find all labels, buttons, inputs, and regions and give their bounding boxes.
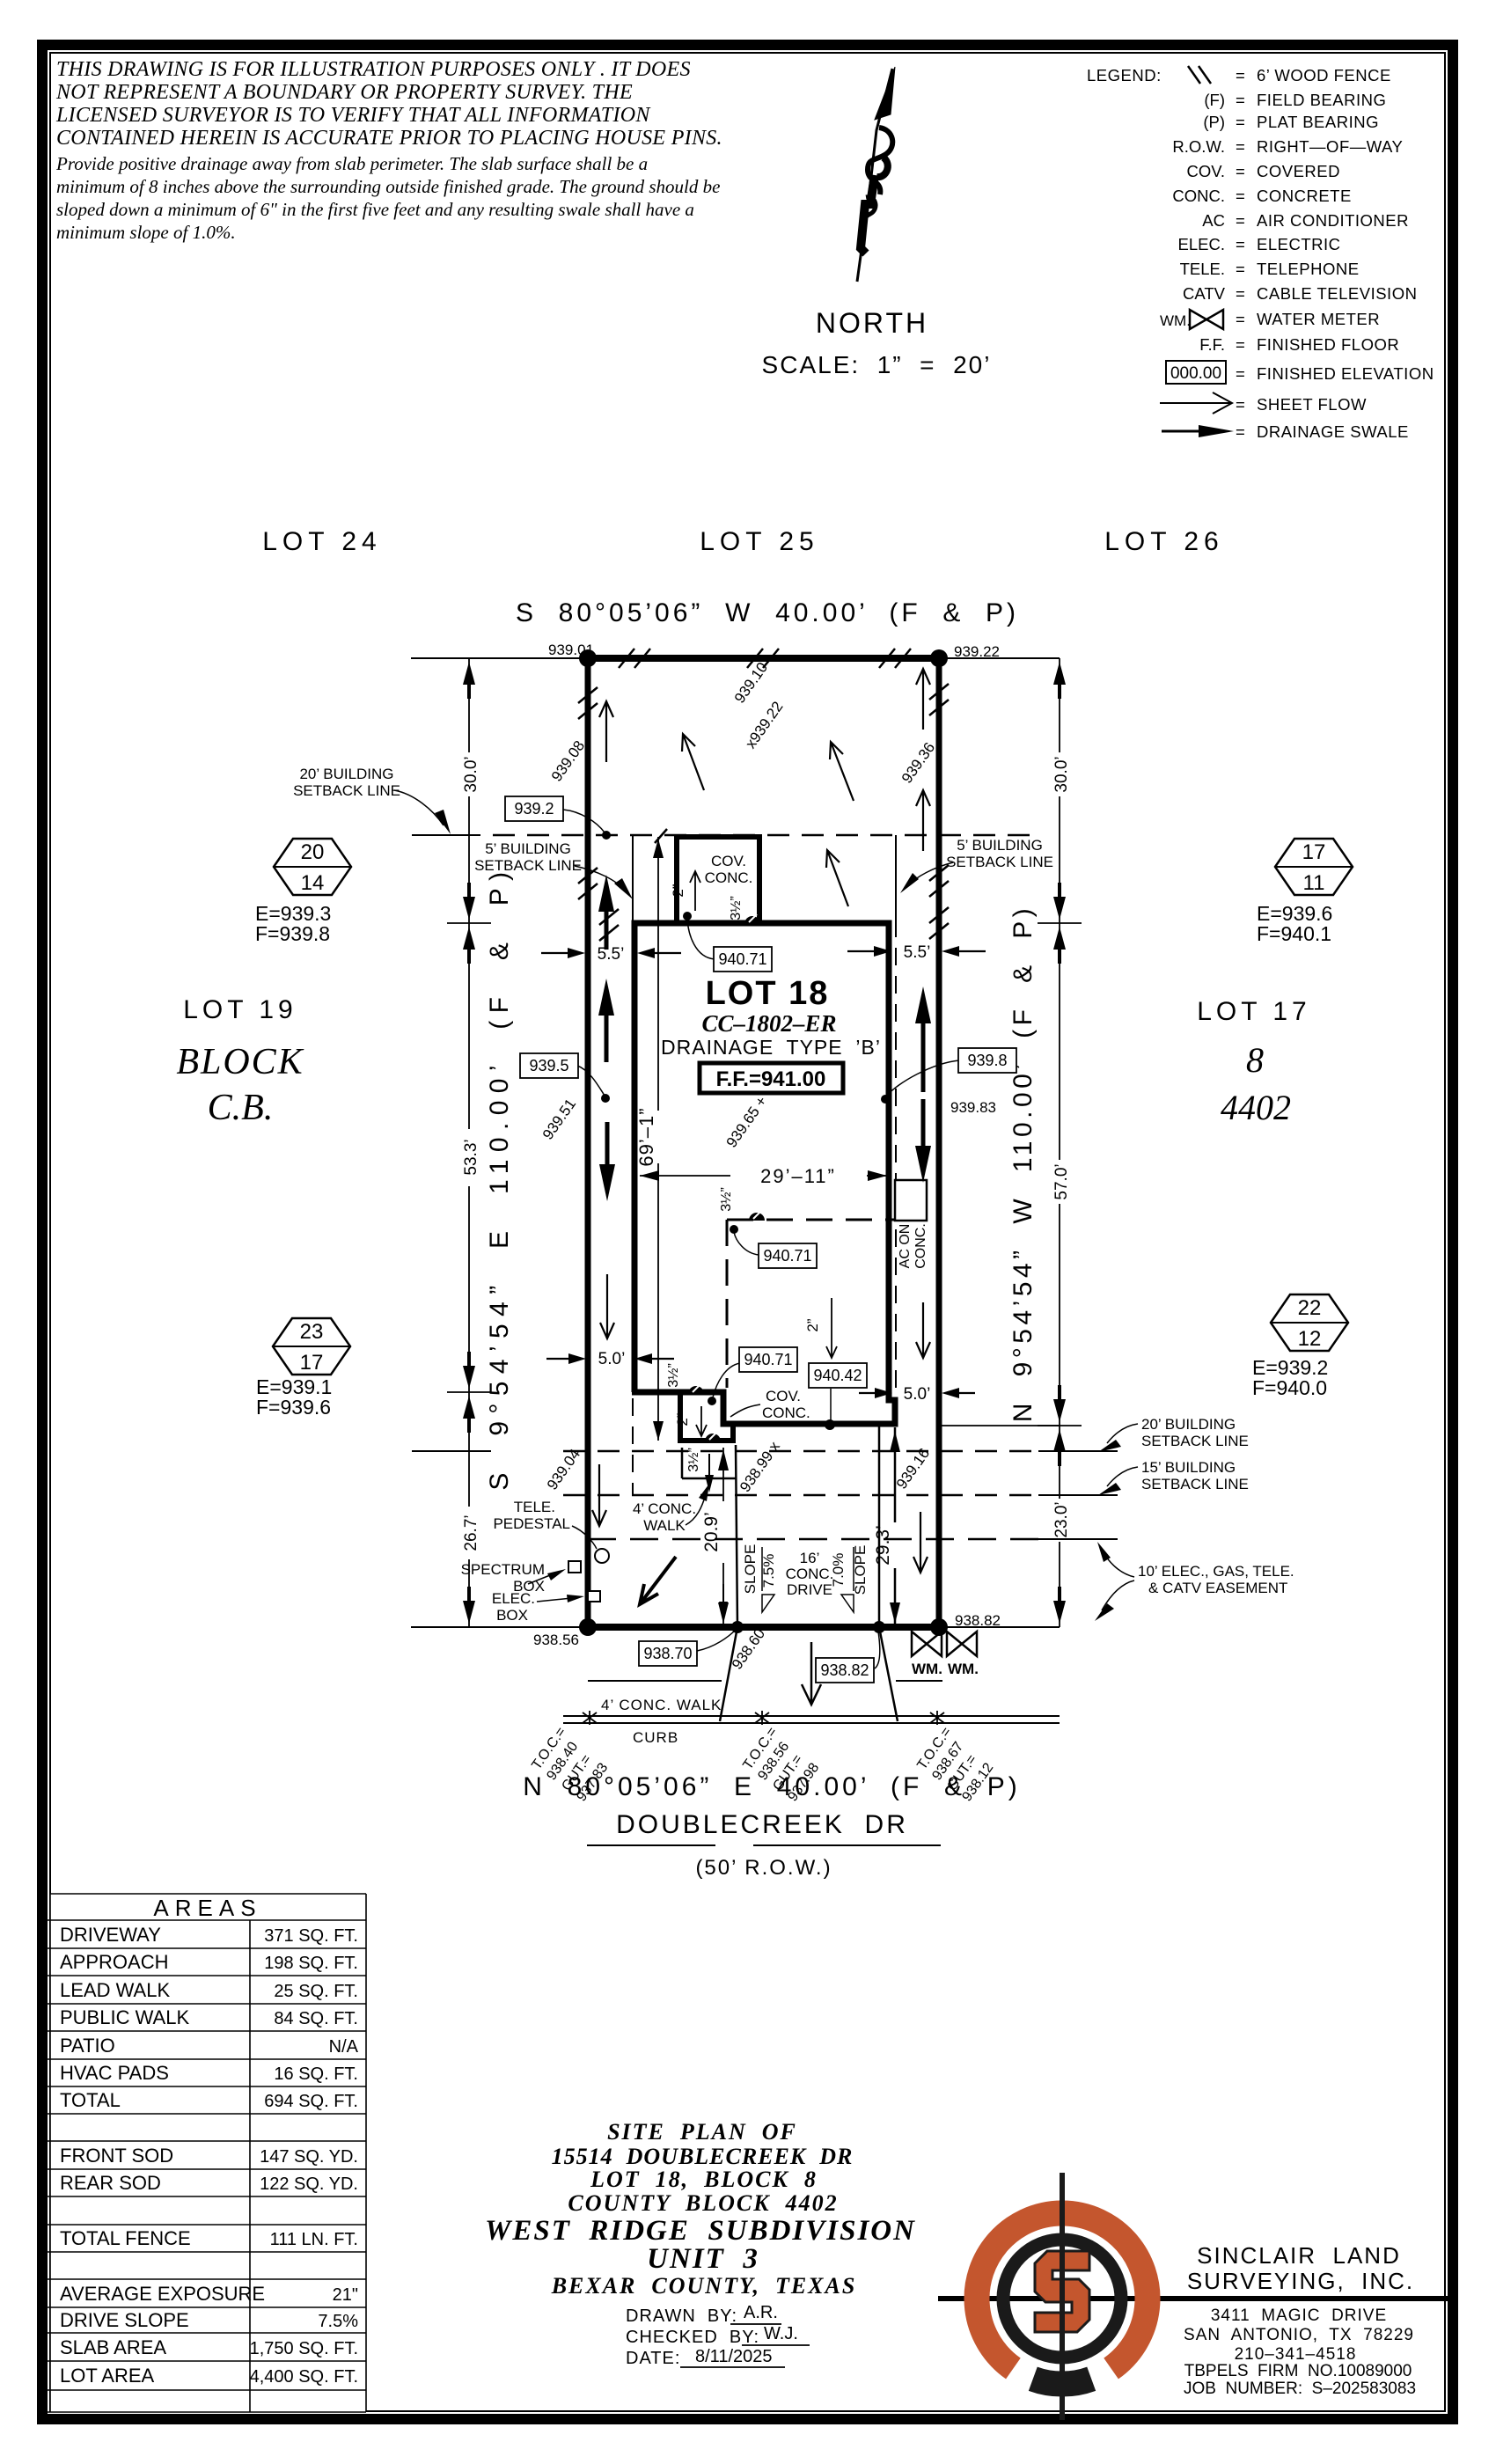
svg-text:CONC.: CONC. bbox=[1172, 187, 1225, 205]
svg-text:5’ BUILDING: 5’ BUILDING bbox=[957, 837, 1043, 854]
svg-text:=: = bbox=[1236, 335, 1245, 354]
svg-text:11: 11 bbox=[1303, 871, 1325, 895]
svg-text:UNIT 3: UNIT 3 bbox=[647, 2243, 759, 2275]
svg-text:F=939.8: F=939.8 bbox=[255, 922, 330, 945]
svg-text:7.0%: 7.0% bbox=[830, 1553, 847, 1588]
svg-text:PLAT BEARING: PLAT BEARING bbox=[1257, 113, 1379, 131]
svg-text:REAR SOD: REAR SOD bbox=[60, 2172, 161, 2194]
svg-text:N 9°54’54” W 110.00’ (F &: N 9°54’54” W 110.00’ (F & P) bbox=[1008, 905, 1038, 1422]
svg-text:R.O.W.: R.O.W. bbox=[1172, 137, 1225, 156]
svg-text:WALK: WALK bbox=[643, 1517, 686, 1534]
svg-text:3½”: 3½” bbox=[686, 1448, 701, 1472]
svg-text:=: = bbox=[1236, 91, 1245, 109]
svg-text:7.5%: 7.5% bbox=[760, 1554, 777, 1588]
svg-text:939.2: 939.2 bbox=[514, 800, 554, 818]
svg-text:23.0’: 23.0’ bbox=[1052, 1501, 1071, 1537]
svg-text:WEST RIDGE SUBDIVISION: WEST RIDGE SUBDIVISION bbox=[485, 2215, 916, 2247]
svg-text:DOUBLECREEK DR: DOUBLECREEK DR bbox=[616, 1810, 908, 1839]
svg-text:ELEC.: ELEC. bbox=[492, 1590, 535, 1607]
svg-text:=: = bbox=[1236, 137, 1245, 156]
svg-text:(F): (F) bbox=[1204, 91, 1225, 109]
svg-text:25 SQ. FT.: 25 SQ. FT. bbox=[274, 1982, 358, 2001]
svg-text:7.5%: 7.5% bbox=[318, 2312, 358, 2331]
svg-text:=: = bbox=[1236, 310, 1245, 328]
svg-text:SCALE: 1” = 20’: SCALE: 1” = 20’ bbox=[762, 351, 992, 378]
svg-text:WATER METER: WATER METER bbox=[1257, 310, 1380, 328]
svg-text:C.B.: C.B. bbox=[208, 1088, 274, 1128]
svg-text:F.F.=941.00: F.F.=941.00 bbox=[716, 1067, 826, 1091]
svg-text:694 SQ. FT.: 694 SQ. FT. bbox=[264, 2092, 358, 2111]
svg-text:DRAINAGE TYPE ’B’: DRAINAGE TYPE ’B’ bbox=[661, 1036, 881, 1059]
svg-text:PATIO: PATIO bbox=[60, 2035, 115, 2057]
svg-text:17: 17 bbox=[300, 1351, 324, 1375]
svg-text:BOX: BOX bbox=[496, 1607, 528, 1624]
svg-text:Provide positive drainage away: Provide positive drainage away from slab… bbox=[55, 153, 648, 174]
svg-text:NOT REPRESENT A BOUNDARY OR PR: NOT REPRESENT A BOUNDARY OR PROPERTY SUR… bbox=[55, 81, 633, 104]
svg-text:939.5: 939.5 bbox=[529, 1057, 568, 1074]
svg-text:COVERED: COVERED bbox=[1257, 162, 1340, 180]
svg-text:=: = bbox=[1236, 284, 1245, 303]
svg-text:CONC.: CONC. bbox=[705, 869, 753, 886]
svg-text:THIS DRAWING IS FOR ILLUSTRATI: THIS DRAWING IS FOR ILLUSTRATION PURPOSE… bbox=[56, 58, 691, 81]
svg-text:CHECKED BY:: CHECKED BY: bbox=[626, 2328, 759, 2347]
svg-text:111 LN. FT.: 111 LN. FT. bbox=[270, 2230, 358, 2249]
svg-text:SETBACK LINE: SETBACK LINE bbox=[1141, 1433, 1249, 1449]
svg-text:(50’ R.O.W.): (50’ R.O.W.) bbox=[695, 1856, 832, 1880]
svg-text:57.0’: 57.0’ bbox=[1052, 1163, 1071, 1199]
svg-text:5.0’: 5.0’ bbox=[598, 1350, 626, 1368]
svg-text:F=939.6: F=939.6 bbox=[256, 1396, 331, 1419]
svg-text:CABLE TELEVISION: CABLE TELEVISION bbox=[1257, 284, 1417, 303]
svg-text:FINISHED FLOOR: FINISHED FLOOR bbox=[1257, 335, 1399, 354]
svg-text:23: 23 bbox=[300, 1320, 324, 1344]
svg-text:2”: 2” bbox=[804, 1318, 821, 1331]
svg-text:29.3’: 29.3’ bbox=[873, 1525, 893, 1566]
svg-text:16’: 16’ bbox=[800, 1550, 820, 1566]
svg-text:CONC.: CONC. bbox=[786, 1566, 834, 1582]
svg-text:(P): (P) bbox=[1203, 113, 1225, 131]
svg-text:LOT 24: LOT 24 bbox=[262, 527, 382, 556]
svg-text:3½”: 3½” bbox=[666, 1363, 681, 1388]
svg-text:SAN ANTONIO, TX 78229: SAN ANTONIO, TX 78229 bbox=[1184, 2326, 1414, 2344]
svg-text:SINCLAIR LAND: SINCLAIR LAND bbox=[1197, 2242, 1401, 2269]
svg-text:WM.: WM. bbox=[912, 1661, 942, 1677]
svg-text:DRIVEWAY: DRIVEWAY bbox=[60, 1924, 161, 1946]
svg-text:3411 MAGIC DRIVE: 3411 MAGIC DRIVE bbox=[1211, 2306, 1387, 2325]
svg-text:20: 20 bbox=[301, 840, 325, 864]
svg-text:S 9°54’54” E 110.00’ (F &: S 9°54’54” E 110.00’ (F & P) bbox=[485, 864, 514, 1490]
svg-text:SETBACK LINE: SETBACK LINE bbox=[474, 857, 582, 874]
svg-text:SPECTRUM: SPECTRUM bbox=[461, 1561, 545, 1578]
svg-text:& CATV EASEMENT: & CATV EASEMENT bbox=[1148, 1580, 1287, 1596]
svg-text:=: = bbox=[1236, 260, 1245, 278]
svg-text:TELEPHONE: TELEPHONE bbox=[1257, 260, 1360, 278]
svg-text:CURB: CURB bbox=[633, 1729, 678, 1746]
svg-text:TELE.: TELE. bbox=[514, 1499, 555, 1515]
svg-text:AVERAGE EXPOSURE: AVERAGE EXPOSURE bbox=[60, 2283, 265, 2305]
svg-text:=: = bbox=[1236, 162, 1245, 180]
svg-text:5.5’: 5.5’ bbox=[598, 945, 625, 964]
svg-text:BEXAR COUNTY, TEXAS: BEXAR COUNTY, TEXAS bbox=[551, 2273, 857, 2299]
svg-text:939.22: 939.22 bbox=[954, 643, 1000, 660]
svg-text:53.3’: 53.3’ bbox=[462, 1139, 480, 1175]
svg-text:LOT 25: LOT 25 bbox=[700, 527, 819, 556]
svg-text:ELEC.: ELEC. bbox=[1178, 235, 1225, 253]
svg-text:WM.: WM. bbox=[1160, 312, 1191, 329]
svg-text:DRAWN BY:: DRAWN BY: bbox=[626, 2306, 737, 2326]
svg-text:26.7’: 26.7’ bbox=[462, 1514, 480, 1551]
svg-text:210–341–4518: 210–341–4518 bbox=[1235, 2345, 1357, 2364]
svg-text:ELECTRIC: ELECTRIC bbox=[1257, 235, 1341, 253]
svg-text:22: 22 bbox=[1298, 1296, 1322, 1320]
svg-text:8/11/2025: 8/11/2025 bbox=[695, 2347, 773, 2366]
svg-text:LOT 19: LOT 19 bbox=[183, 995, 297, 1024]
svg-text:SETBACK LINE: SETBACK LINE bbox=[946, 854, 1053, 870]
svg-text:minimum of 8 inches above the: minimum of 8 inches above the surroundin… bbox=[56, 176, 720, 197]
svg-text:=: = bbox=[1236, 235, 1245, 253]
svg-text:371 SQ. FT.: 371 SQ. FT. bbox=[264, 1926, 358, 1946]
svg-text:FRONT SOD: FRONT SOD bbox=[60, 2145, 173, 2167]
svg-text:940.42: 940.42 bbox=[813, 1367, 862, 1384]
svg-text:12: 12 bbox=[1298, 1327, 1322, 1351]
svg-text:AREAS: AREAS bbox=[153, 1895, 261, 1921]
svg-text:1,750 SQ. FT.: 1,750 SQ. FT. bbox=[250, 2339, 358, 2358]
svg-text:15514 DOUBLECREEK DR: 15514 DOUBLECREEK DR bbox=[552, 2144, 854, 2169]
svg-text:4’ CONC. WALK: 4’ CONC. WALK bbox=[601, 1697, 722, 1713]
svg-text:SLOPE: SLOPE bbox=[852, 1545, 869, 1595]
svg-text:COUNTY BLOCK 4402: COUNTY BLOCK 4402 bbox=[568, 2190, 838, 2216]
svg-text:AC: AC bbox=[1202, 211, 1225, 230]
svg-text:940.71: 940.71 bbox=[744, 1351, 792, 1368]
svg-text:DATE:: DATE: bbox=[626, 2349, 680, 2368]
svg-text:COV.: COV. bbox=[766, 1388, 801, 1404]
svg-text:=: = bbox=[1236, 211, 1245, 230]
svg-text:938.56: 938.56 bbox=[533, 1632, 579, 1648]
svg-text:2”: 2” bbox=[670, 884, 686, 897]
svg-text:SETBACK LINE: SETBACK LINE bbox=[293, 782, 400, 799]
svg-text:minimum slope of 1.0%.: minimum slope of 1.0%. bbox=[56, 222, 236, 243]
svg-text:938.70: 938.70 bbox=[643, 1645, 692, 1662]
svg-text:21": 21" bbox=[333, 2285, 358, 2305]
svg-text:147 SQ. YD.: 147 SQ. YD. bbox=[260, 2147, 358, 2167]
svg-text:TOTAL: TOTAL bbox=[60, 2089, 121, 2111]
svg-text:AIR CONDITIONER: AIR CONDITIONER bbox=[1257, 211, 1409, 230]
svg-text:COV.: COV. bbox=[711, 853, 746, 869]
svg-text:940.71: 940.71 bbox=[718, 950, 766, 968]
svg-text:F=940.1: F=940.1 bbox=[1257, 922, 1331, 945]
svg-text:F.F.: F.F. bbox=[1199, 335, 1225, 354]
svg-text:sloped down a minimum of 6" in: sloped down a minimum of 6" in the first… bbox=[56, 199, 694, 220]
svg-text:JOB NUMBER: S–202583083: JOB NUMBER: S–202583083 bbox=[1184, 2380, 1416, 2398]
svg-text:=: = bbox=[1236, 422, 1245, 441]
svg-text:29’–11”: 29’–11” bbox=[760, 1165, 836, 1187]
svg-text:122 SQ. YD.: 122 SQ. YD. bbox=[260, 2174, 358, 2194]
svg-text:SHEET FLOW: SHEET FLOW bbox=[1257, 395, 1367, 414]
svg-text:CATV: CATV bbox=[1183, 284, 1226, 303]
svg-text:RIGHT—OF—WAY: RIGHT—OF—WAY bbox=[1257, 137, 1403, 156]
svg-text:17: 17 bbox=[1302, 840, 1326, 864]
svg-text:939.83: 939.83 bbox=[950, 1099, 996, 1116]
svg-text:000.00: 000.00 bbox=[1170, 364, 1221, 383]
svg-text:W.J.: W.J. bbox=[764, 2324, 798, 2343]
svg-text:DRAINAGE SWALE: DRAINAGE SWALE bbox=[1257, 422, 1409, 441]
svg-text:N/A: N/A bbox=[329, 2037, 359, 2057]
svg-text:20’ BUILDING: 20’ BUILDING bbox=[1141, 1416, 1236, 1433]
svg-text:CONC.: CONC. bbox=[762, 1404, 810, 1421]
svg-text:LEGEND:: LEGEND: bbox=[1087, 66, 1162, 84]
svg-text:2”: 2” bbox=[674, 1412, 691, 1426]
svg-text:3½”: 3½” bbox=[729, 896, 744, 920]
svg-text:16 SQ. FT.: 16 SQ. FT. bbox=[274, 2064, 358, 2084]
svg-text:DRIVE: DRIVE bbox=[787, 1581, 832, 1598]
svg-text:BLOCK: BLOCK bbox=[176, 1042, 304, 1082]
svg-text:4,400 SQ. FT.: 4,400 SQ. FT. bbox=[250, 2367, 358, 2387]
svg-text:LEAD WALK: LEAD WALK bbox=[60, 1979, 170, 2001]
svg-text:=: = bbox=[1236, 187, 1245, 205]
svg-text:CC–1802–ER: CC–1802–ER bbox=[701, 1010, 836, 1037]
svg-text:SITE PLAN OF: SITE PLAN OF bbox=[607, 2119, 797, 2145]
svg-text:LOT 26: LOT 26 bbox=[1104, 527, 1224, 556]
svg-text:=: = bbox=[1236, 113, 1245, 131]
svg-text:3½”: 3½” bbox=[719, 1187, 734, 1212]
svg-text:SURVEYING, INC.: SURVEYING, INC. bbox=[1187, 2268, 1414, 2294]
svg-text:8: 8 bbox=[1246, 1040, 1264, 1080]
svg-text:6’ WOOD FENCE: 6’ WOOD FENCE bbox=[1257, 66, 1391, 84]
svg-text:TOTAL FENCE: TOTAL FENCE bbox=[60, 2227, 191, 2249]
svg-text:30.0’: 30.0’ bbox=[462, 756, 480, 792]
svg-text:CONC.: CONC. bbox=[913, 1223, 928, 1269]
svg-text:AC ON: AC ON bbox=[898, 1224, 913, 1269]
svg-text:PEDESTAL: PEDESTAL bbox=[493, 1515, 570, 1532]
svg-text:CONTAINED HEREIN IS ACCURATE P: CONTAINED HEREIN IS ACCURATE PRIOR TO PL… bbox=[56, 127, 722, 150]
svg-text:10’ ELEC., GAS, TELE.: 10’ ELEC., GAS, TELE. bbox=[1138, 1563, 1294, 1580]
svg-text:5.0’: 5.0’ bbox=[904, 1385, 931, 1404]
svg-text:COV.: COV. bbox=[1186, 162, 1225, 180]
svg-text:198 SQ. FT.: 198 SQ. FT. bbox=[264, 1954, 358, 1973]
svg-text:SLOPE: SLOPE bbox=[742, 1544, 759, 1595]
svg-text:SLAB AREA: SLAB AREA bbox=[60, 2336, 166, 2358]
svg-text:14: 14 bbox=[301, 871, 325, 895]
svg-text:FINISHED ELEVATION: FINISHED ELEVATION bbox=[1257, 364, 1434, 383]
svg-text:938.82: 938.82 bbox=[820, 1661, 869, 1679]
svg-text:A.R.: A.R. bbox=[744, 2303, 778, 2322]
svg-text:4’ CONC.: 4’ CONC. bbox=[633, 1500, 696, 1517]
svg-text:WM.: WM. bbox=[948, 1661, 979, 1677]
svg-text:30.0’: 30.0’ bbox=[1052, 756, 1071, 792]
svg-text:20.9’: 20.9’ bbox=[701, 1512, 722, 1552]
svg-text:F=940.0: F=940.0 bbox=[1252, 1376, 1327, 1399]
svg-text:938.82: 938.82 bbox=[955, 1612, 1001, 1629]
svg-text:TELE.: TELE. bbox=[1180, 260, 1225, 278]
svg-text:20’ BUILDING: 20’ BUILDING bbox=[299, 766, 393, 782]
svg-text:84 SQ. FT.: 84 SQ. FT. bbox=[274, 2009, 358, 2028]
svg-text:TBPELS FIRM NO.10089000: TBPELS FIRM NO.10089000 bbox=[1184, 2362, 1412, 2380]
svg-text:NORTH: NORTH bbox=[816, 307, 928, 339]
svg-text:FIELD BEARING: FIELD BEARING bbox=[1257, 91, 1386, 109]
svg-text:LOT 18: LOT 18 bbox=[706, 975, 830, 1012]
svg-text:4402: 4402 bbox=[1221, 1088, 1291, 1127]
svg-text:939.01: 939.01 bbox=[548, 642, 594, 658]
svg-text:5’ BUILDING: 5’ BUILDING bbox=[485, 840, 571, 857]
svg-text:939.8: 939.8 bbox=[967, 1052, 1007, 1069]
svg-text:LOT 18, BLOCK 8: LOT 18, BLOCK 8 bbox=[590, 2167, 818, 2192]
svg-text:S 80°05’06” W 40.00’ (F &: S 80°05’06” W 40.00’ (F & P) bbox=[516, 598, 1019, 627]
svg-text:PUBLIC WALK: PUBLIC WALK bbox=[60, 2006, 189, 2028]
svg-text:=: = bbox=[1236, 364, 1245, 383]
svg-text:69’–1”: 69’–1” bbox=[635, 1107, 657, 1166]
svg-text:=: = bbox=[1236, 395, 1245, 414]
svg-text:=: = bbox=[1236, 66, 1245, 84]
svg-text:LOT AREA: LOT AREA bbox=[60, 2365, 155, 2387]
svg-text:5.5’: 5.5’ bbox=[904, 943, 931, 962]
svg-text:LICENSED SURVEYOR IS TO VERIFY: LICENSED SURVEYOR IS TO VERIFY THAT ALL … bbox=[55, 104, 651, 127]
svg-text:15’ BUILDING: 15’ BUILDING bbox=[1141, 1459, 1236, 1476]
svg-text:LOT 17: LOT 17 bbox=[1197, 997, 1311, 1026]
svg-text:HVAC PADS: HVAC PADS bbox=[60, 2062, 169, 2084]
svg-text:APPROACH: APPROACH bbox=[60, 1951, 168, 1973]
svg-text:940.71: 940.71 bbox=[763, 1247, 811, 1265]
svg-text:SETBACK LINE: SETBACK LINE bbox=[1141, 1476, 1249, 1492]
svg-text:DRIVE SLOPE: DRIVE SLOPE bbox=[60, 2309, 189, 2331]
svg-text:CONCRETE: CONCRETE bbox=[1257, 187, 1352, 205]
